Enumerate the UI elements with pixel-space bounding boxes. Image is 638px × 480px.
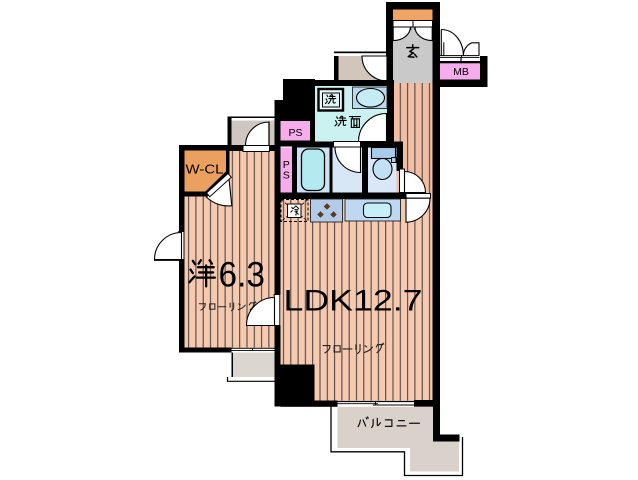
- svg-text:MB: MB: [453, 66, 469, 78]
- svg-text:LDK12.7: LDK12.7: [284, 285, 423, 318]
- svg-text:S: S: [283, 170, 290, 182]
- svg-text:W-CL: W-CL: [186, 163, 224, 177]
- svg-text:6.3: 6.3: [219, 256, 266, 295]
- svg-text:PS: PS: [288, 127, 302, 139]
